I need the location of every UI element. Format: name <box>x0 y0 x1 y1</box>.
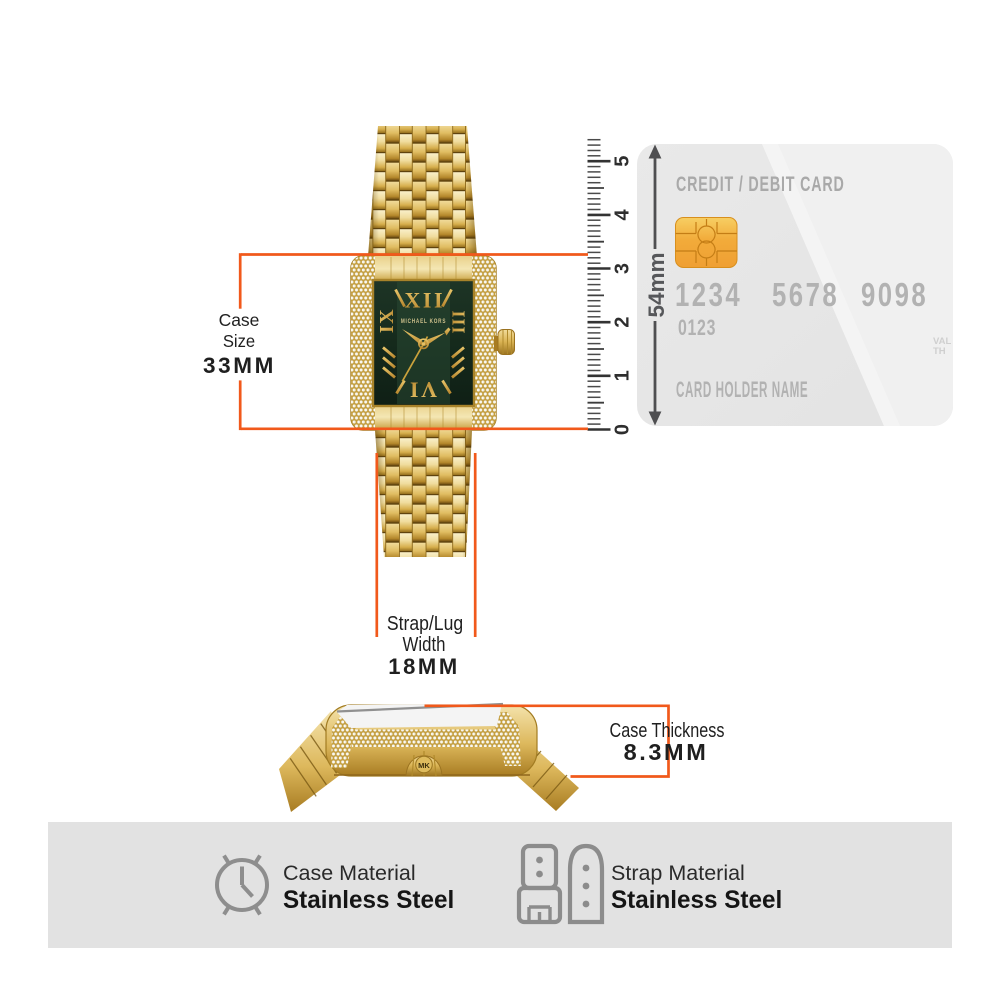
svg-text:4: 4 <box>612 208 634 220</box>
svg-text:3: 3 <box>612 263 634 274</box>
svg-text:5: 5 <box>612 156 634 167</box>
svg-text:VI: VI <box>407 378 436 403</box>
svg-text:MK: MK <box>418 761 430 770</box>
svg-text:MICHAEL KORS: MICHAEL KORS <box>401 318 446 325</box>
svg-text:1: 1 <box>612 370 634 381</box>
svg-text:XII: XII <box>405 288 446 313</box>
svg-text:IX: IX <box>376 308 398 333</box>
svg-text:III: III <box>449 310 469 334</box>
svg-text:54mm: 54mm <box>644 252 669 317</box>
svg-text:0: 0 <box>612 424 634 435</box>
svg-text:2: 2 <box>612 317 634 328</box>
